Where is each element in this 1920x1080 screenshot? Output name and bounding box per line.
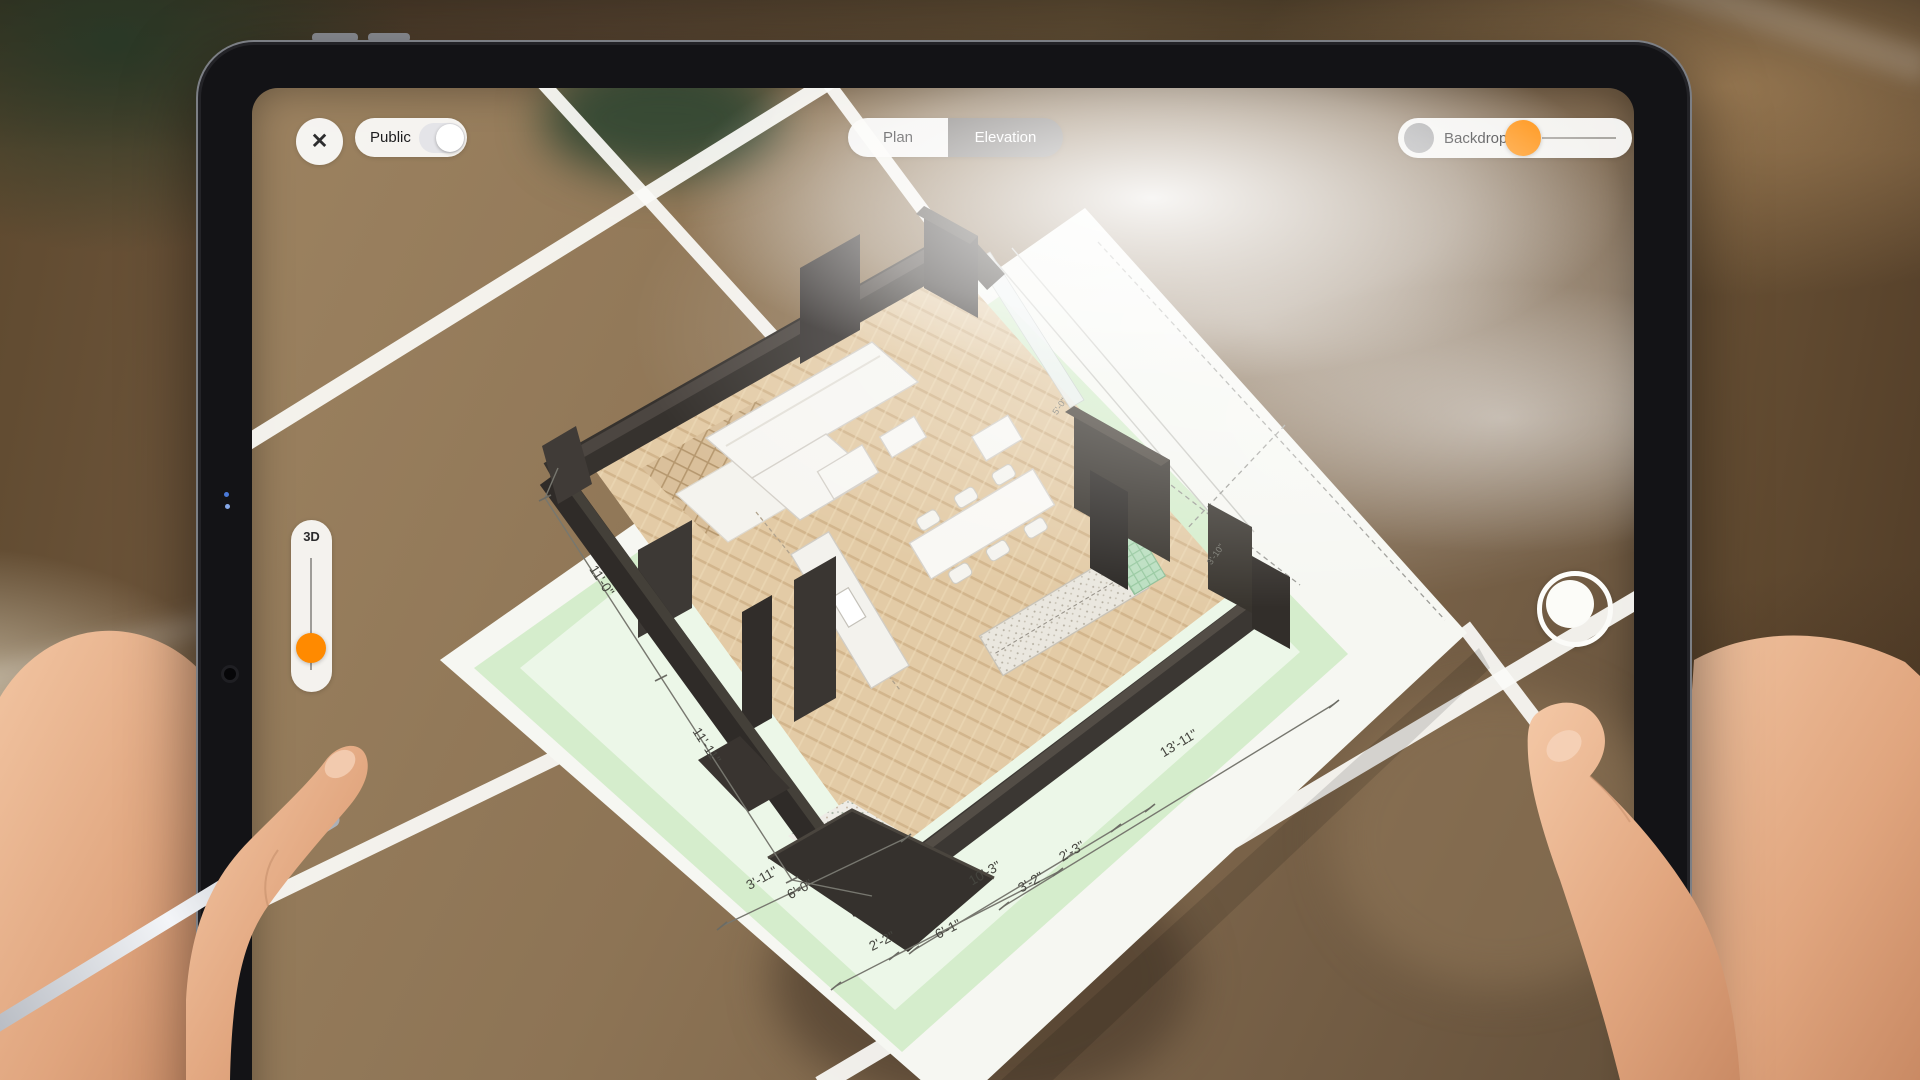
front-camera xyxy=(224,668,236,680)
tablet: 11'-0" 11'-11" 3'-11" 6'-0" 2'-2" 6'-1" … xyxy=(196,40,1692,1080)
floor-plan-layer: 11'-0" 11'-11" 3'-11" 6'-0" 2'-2" 6'-1" … xyxy=(252,88,1634,1080)
toggle-knob[interactable] xyxy=(436,124,464,152)
close-icon: ✕ xyxy=(311,129,329,154)
public-toggle-pill[interactable]: Public xyxy=(355,118,467,157)
close-button[interactable]: ✕ xyxy=(296,118,343,165)
scene: 11'-0" 11'-11" 3'-11" 6'-0" 2'-2" 6'-1" … xyxy=(0,0,1920,1080)
ar-camera-view[interactable]: 11'-0" 11'-11" 3'-11" 6'-0" 2'-2" 6'-1" … xyxy=(252,88,1634,1080)
public-toggle[interactable] xyxy=(419,123,465,153)
public-label: Public xyxy=(370,129,411,146)
sensor-glint xyxy=(224,492,229,497)
sensor-glint xyxy=(225,504,230,509)
